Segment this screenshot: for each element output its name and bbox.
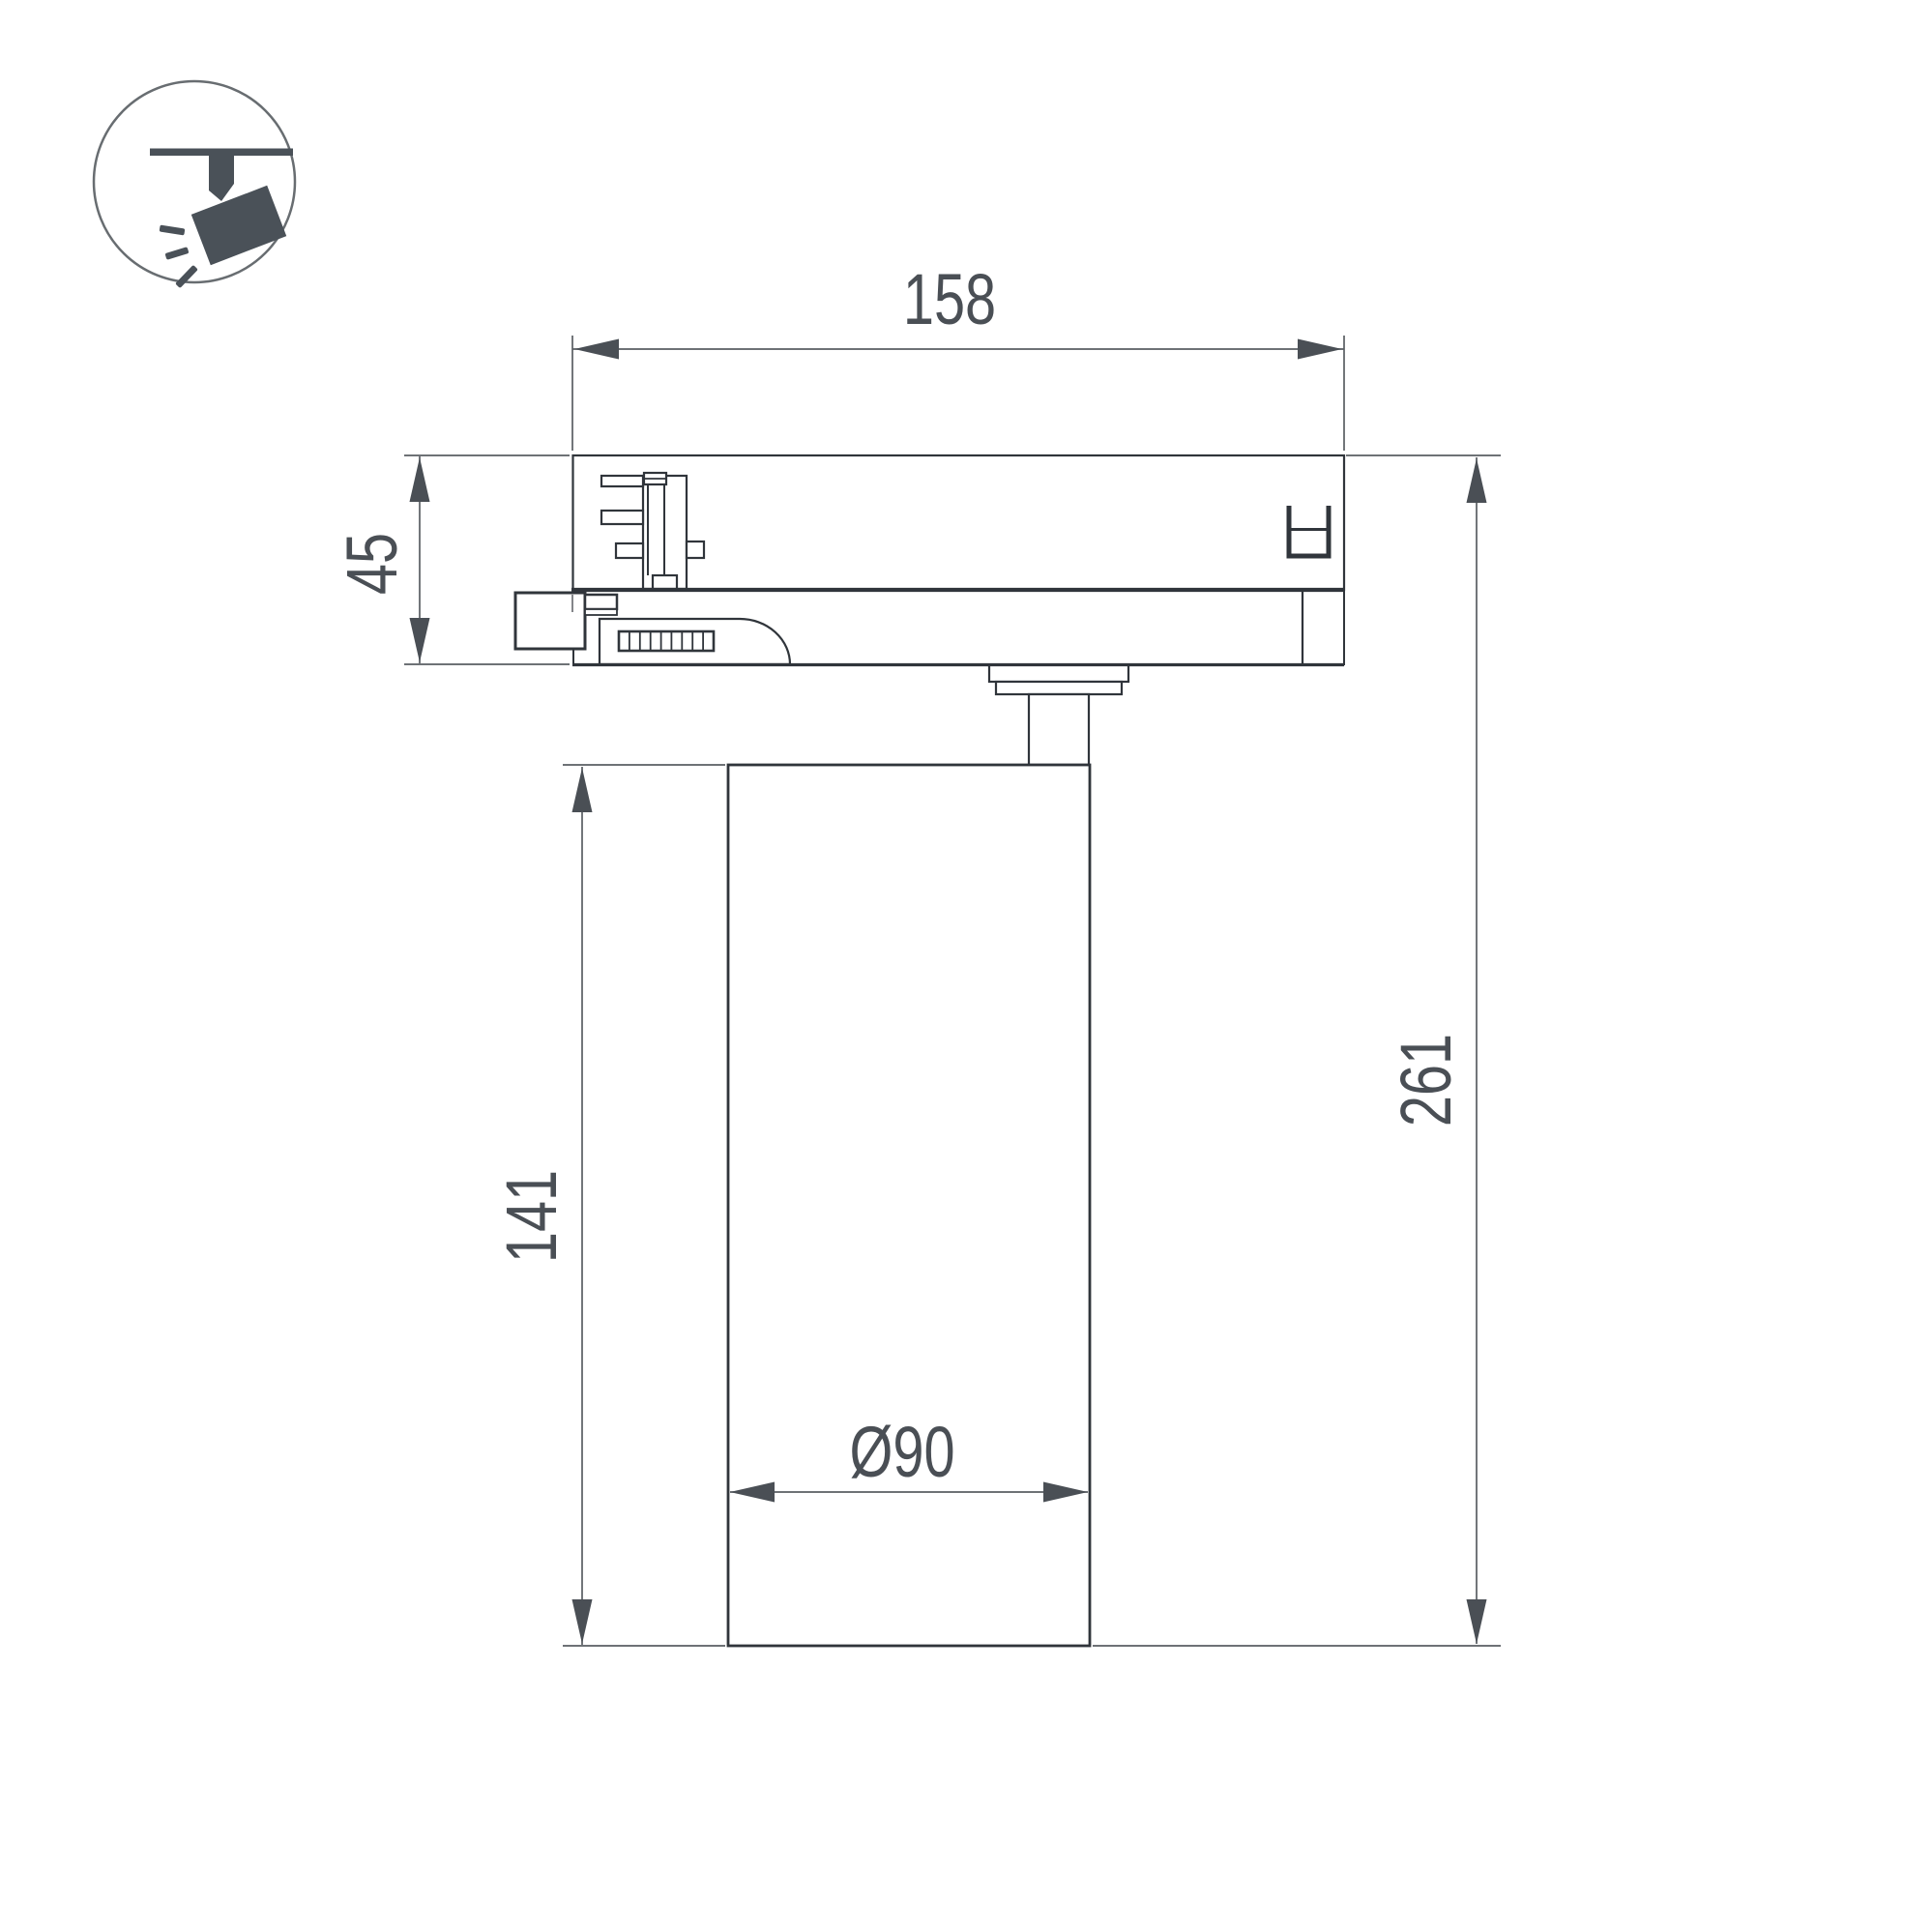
technical-drawing: 158 45 141 261 Ø90 bbox=[0, 0, 1932, 1932]
contact-pin bbox=[616, 543, 643, 558]
dim-label-body-diameter: Ø90 bbox=[849, 1413, 954, 1493]
joint-flange-upper bbox=[989, 665, 1128, 682]
adapter-upper-housing bbox=[573, 455, 1345, 590]
adapter-ribbed-grip bbox=[619, 631, 714, 651]
contact-lug bbox=[687, 542, 704, 558]
track-spotlight-icon bbox=[94, 81, 295, 288]
lamp-body-cylinder bbox=[728, 765, 1090, 1646]
icon-circle bbox=[94, 81, 295, 282]
dim-label-adapter-length: 158 bbox=[903, 260, 996, 340]
dim-label-body-height: 141 bbox=[492, 1170, 572, 1263]
contact-pin bbox=[601, 476, 643, 486]
dim-label-adapter-height: 45 bbox=[333, 533, 413, 595]
dim-label-total-height: 261 bbox=[1387, 1034, 1467, 1127]
joint-stem bbox=[1029, 694, 1089, 765]
adapter-clip-detail bbox=[1289, 506, 1329, 556]
icon-track-bar bbox=[150, 149, 293, 157]
track-adapter bbox=[515, 455, 1344, 665]
swivel-joint bbox=[989, 665, 1128, 765]
contact-pin bbox=[601, 511, 643, 524]
joint-flange-lower bbox=[996, 682, 1122, 694]
drawing-canvas: 158 45 141 261 Ø90 bbox=[0, 0, 1932, 1932]
